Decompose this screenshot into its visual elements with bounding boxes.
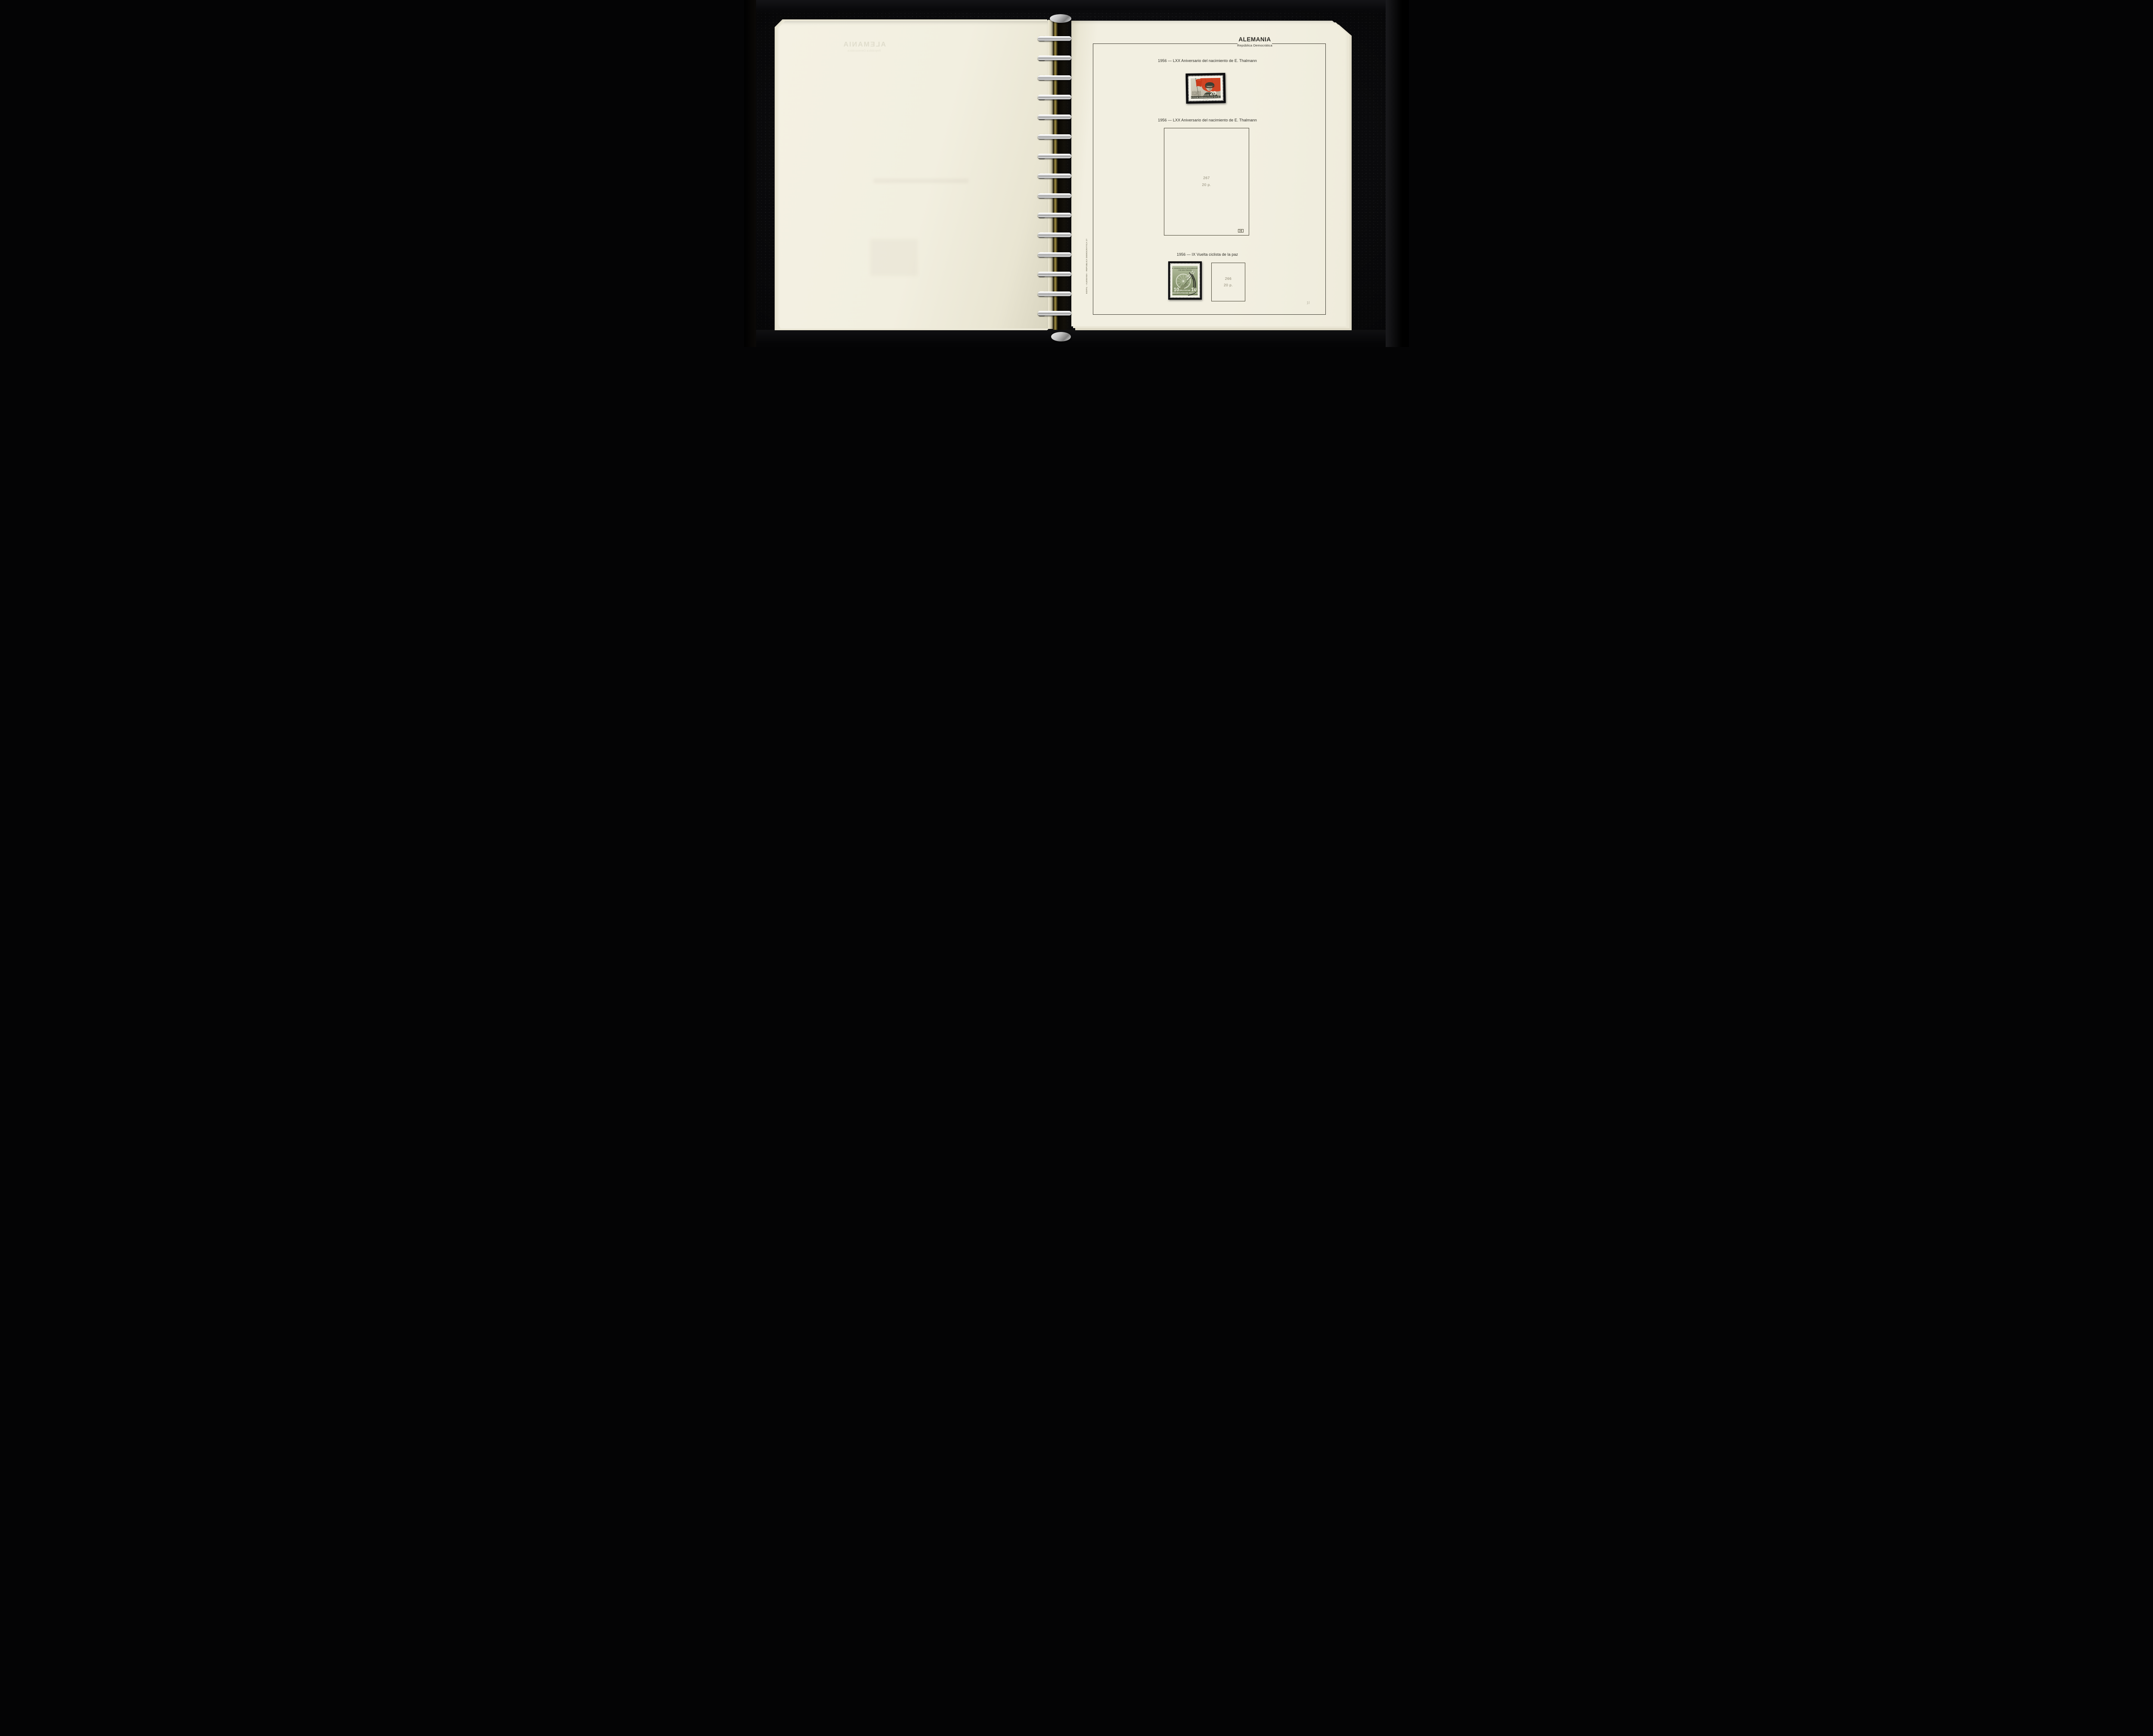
stamp-mount-thalmann: 1886 - 1956 ERNST THÄLMANN DEUTSCHE DEMO… — [1185, 73, 1225, 104]
stamp-album-photo: ALEMANIA República Democrática ALEMANIA … — [744, 0, 1409, 347]
cycling-title-line1: IX. INTERNATIONALE RADFERNFAHRT — [1172, 267, 1198, 269]
left-page-ghost-title: ALEMANIA — [827, 41, 901, 49]
binder-ring — [1038, 174, 1071, 178]
binder-ring — [1038, 291, 1071, 296]
placeholder-number: 267 — [1164, 176, 1249, 180]
binder-mechanism-top-disc — [1050, 14, 1071, 23]
left-album-page: ALEMANIA República Democrática — [778, 21, 1048, 329]
caption-thalmann-placeholder: 1956 — LXX Aniversario del nacimiento de… — [1143, 118, 1272, 122]
right-album-page: ALEMANIA República Democrática 1956 — LX… — [1071, 21, 1347, 326]
pencil-annotation: 1t — [1306, 300, 1310, 305]
binder-ring — [1038, 95, 1071, 99]
caption-thalmann-mounted: 1956 — LXX Aniversario del nacimiento de… — [1143, 59, 1272, 63]
binder-ring — [1038, 193, 1071, 198]
binder-ring — [1038, 36, 1071, 41]
stamp-placeholder-266: 266 20 p. — [1211, 263, 1245, 301]
binder-ring — [1038, 154, 1071, 158]
cycling-stamp: IX. INTERNATIONALE RADFERNFAHRT FÜR DEN … — [1170, 263, 1200, 298]
binder-ring — [1038, 252, 1071, 257]
binder-top-edge — [744, 0, 1409, 14]
binder-left-edge — [744, 0, 756, 347]
thalmann-stamp: 1886 - 1956 ERNST THÄLMANN DEUTSCHE DEMO… — [1188, 75, 1223, 101]
binder-ring — [1038, 232, 1071, 237]
stamp-name-label: ERNST THÄLMANN — [1192, 94, 1209, 96]
binder-ring — [1038, 272, 1071, 276]
page-subtitle: República Democrática — [1220, 43, 1289, 47]
left-page-ghost-subtitle: República Democrática — [827, 49, 901, 53]
binder-right-edge — [1386, 0, 1409, 347]
binder-ring — [1038, 134, 1071, 139]
binder-ring — [1038, 311, 1071, 316]
stamp-mount-cycling: IX. INTERNATIONALE RADFERNFAHRT FÜR DEN … — [1168, 261, 1202, 300]
cycling-title-line2: FÜR DEN FRIEDEN — [1179, 269, 1192, 271]
binder-mechanism-bottom-disc — [1051, 332, 1071, 341]
left-page-showthrough-line — [874, 179, 968, 183]
binder-ring — [1038, 75, 1071, 80]
left-page-showthrough-box — [870, 239, 918, 276]
binder-ring — [1038, 115, 1071, 119]
placeholder-value: 20 p. — [1212, 283, 1245, 287]
caption-cycling: 1956 — IX Vuelta ciclista de la paz — [1143, 252, 1272, 257]
placeholder-number: 266 — [1212, 276, 1245, 281]
edition-spine-text: EDIFIL - ALEMANIA - REPUBLICA DEMOCRATIC… — [1086, 252, 1090, 294]
binder-ring — [1038, 56, 1071, 60]
stamp-placeholder-267: 267 20 p. — [1164, 128, 1249, 236]
edifil-mark-icon — [1238, 229, 1244, 232]
stamp-engraver-label: EIGLER — [1203, 99, 1208, 100]
placeholder-value: 20 p. — [1164, 183, 1249, 187]
binder-ring — [1038, 213, 1071, 217]
cycling-country-line1: DEUTSCHE — [1179, 289, 1191, 291]
binder-bottom-edge — [744, 330, 1409, 347]
stamp-value-label: 20 — [1210, 90, 1216, 96]
page-title: ALEMANIA — [1220, 36, 1289, 43]
